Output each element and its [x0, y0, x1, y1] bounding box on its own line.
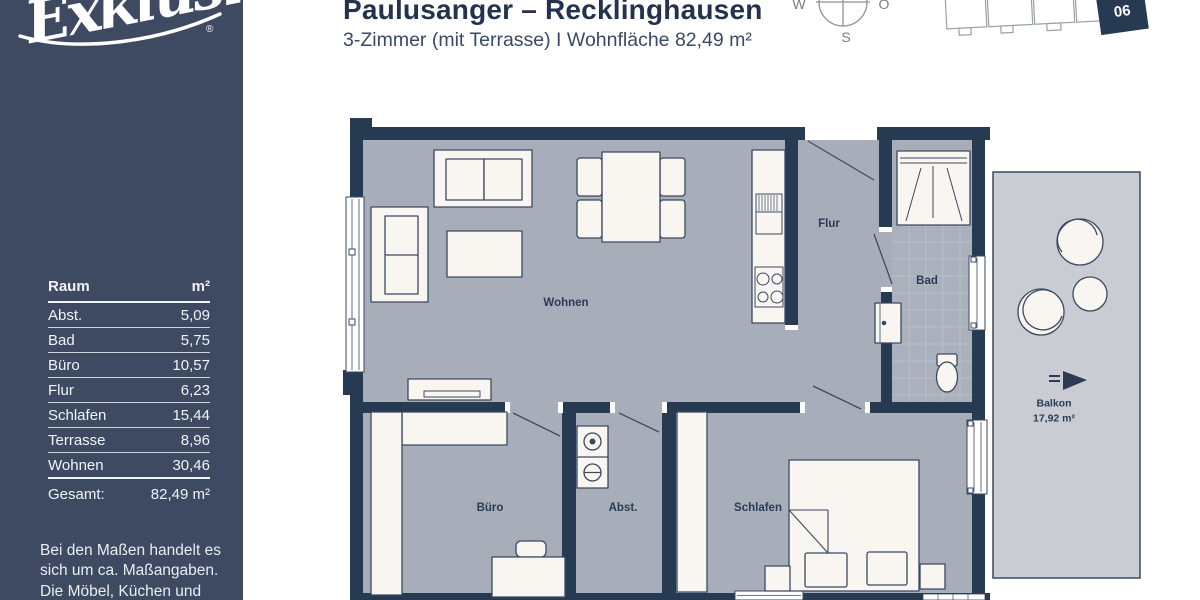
page-subtitle: 3-Zimmer (mit Terrasse) I Wohnfläche 82,…: [343, 29, 752, 52]
window-bathroom: [969, 256, 985, 330]
window-living-room: [346, 197, 364, 372]
room-name: Abst.: [48, 302, 128, 328]
sideboard: [408, 379, 491, 400]
room-area: 6,23: [128, 378, 210, 403]
room-area: 5,09: [128, 302, 210, 328]
armchair: [371, 207, 428, 302]
nightstand-right: [920, 564, 945, 589]
room-name: Terrasse: [48, 428, 128, 453]
disclaimer-text: Bei den Maßen handelt es sich um ca. Maß…: [40, 541, 232, 600]
table-row: Terrasse 8,96: [48, 428, 210, 453]
total-area: 82,49 m²: [128, 478, 210, 506]
window-bottom-right: [923, 594, 985, 600]
sidebar: Exklusiv ® Raum m² Abst. 5,09 Bad 5,75: [0, 0, 243, 600]
site-plan-units: [945, 0, 1107, 36]
room-area-table: Raum m² Abst. 5,09 Bad 5,75 Büro 10,57 F…: [48, 278, 210, 506]
room-name: Schlafen: [48, 403, 128, 428]
balkon-name: Balkon: [1036, 397, 1071, 409]
bathroom-appliance: [875, 303, 901, 343]
brand-logo-swoosh-icon: [14, 0, 229, 60]
sofa: [434, 150, 532, 207]
table-row: Abst. 5,09: [48, 302, 210, 328]
total-label: Gesamt:: [48, 478, 128, 506]
balcony-door: [967, 420, 987, 494]
site-plan-icon: 06: [935, 0, 1165, 42]
table-row: Wohnen 30,46: [48, 453, 210, 479]
coffee-table: [447, 231, 522, 277]
registered-mark: ®: [206, 24, 213, 35]
room-name: Bad: [48, 328, 128, 353]
room-area: 8,96: [128, 428, 210, 453]
room-area: 15,44: [128, 403, 210, 428]
room-name: Büro: [48, 353, 128, 378]
table-row: Schlafen 15,44: [48, 403, 210, 428]
nightstand-left: [765, 566, 790, 591]
room-label-buero: Büro: [477, 502, 504, 514]
room-label-balkon: Balkon 17,92 m²: [1033, 396, 1075, 425]
compass-south: S: [841, 29, 850, 45]
room-name: Wohnen: [48, 453, 128, 479]
table-row: Flur 6,23: [48, 378, 210, 403]
room-label-flur: Flur: [818, 218, 840, 230]
shower: [897, 151, 970, 225]
column-area: m²: [128, 278, 210, 302]
washer-dryer-stack: [577, 426, 608, 488]
page-title: Paulusanger – Recklinghausen: [343, 0, 763, 26]
floor-plan-drawing: [340, 118, 1150, 600]
room-label-bad: Bad: [916, 275, 938, 287]
wardrobe: [677, 412, 707, 592]
bed: [789, 460, 919, 591]
room-label-wohnen: Wohnen: [543, 297, 588, 309]
table-row: Bad 5,75: [48, 328, 210, 353]
table-total-row: Gesamt: 82,49 m²: [48, 478, 210, 506]
table-header-row: Raum m²: [48, 278, 210, 302]
window-bedroom-bottom: [735, 591, 803, 600]
unit-number-badge: 06: [1113, 2, 1132, 21]
room-area: 30,46: [128, 453, 210, 479]
compass-west: W: [792, 0, 806, 12]
room-name: Flur: [48, 378, 128, 403]
compass-icon: W O S: [780, 0, 910, 60]
room-area: 5,75: [128, 328, 210, 353]
site-plan-current-unit: 06: [1095, 0, 1149, 35]
compass-east: O: [879, 0, 890, 12]
room-area: 10,57: [128, 353, 210, 378]
floorplan-page: Exklusiv ® Raum m² Abst. 5,09 Bad 5,75: [0, 0, 1200, 600]
bathroom-tiled-floor: [892, 225, 972, 403]
room-label-abst: Abst.: [609, 502, 638, 514]
toilet: [937, 354, 958, 392]
table-row: Büro 10,57: [48, 353, 210, 378]
balkon-area: 17,92 m²: [1033, 412, 1075, 424]
room-label-schlafen: Schlafen: [734, 502, 782, 514]
kitchen-counter: [752, 150, 785, 323]
column-room: Raum: [48, 278, 128, 302]
